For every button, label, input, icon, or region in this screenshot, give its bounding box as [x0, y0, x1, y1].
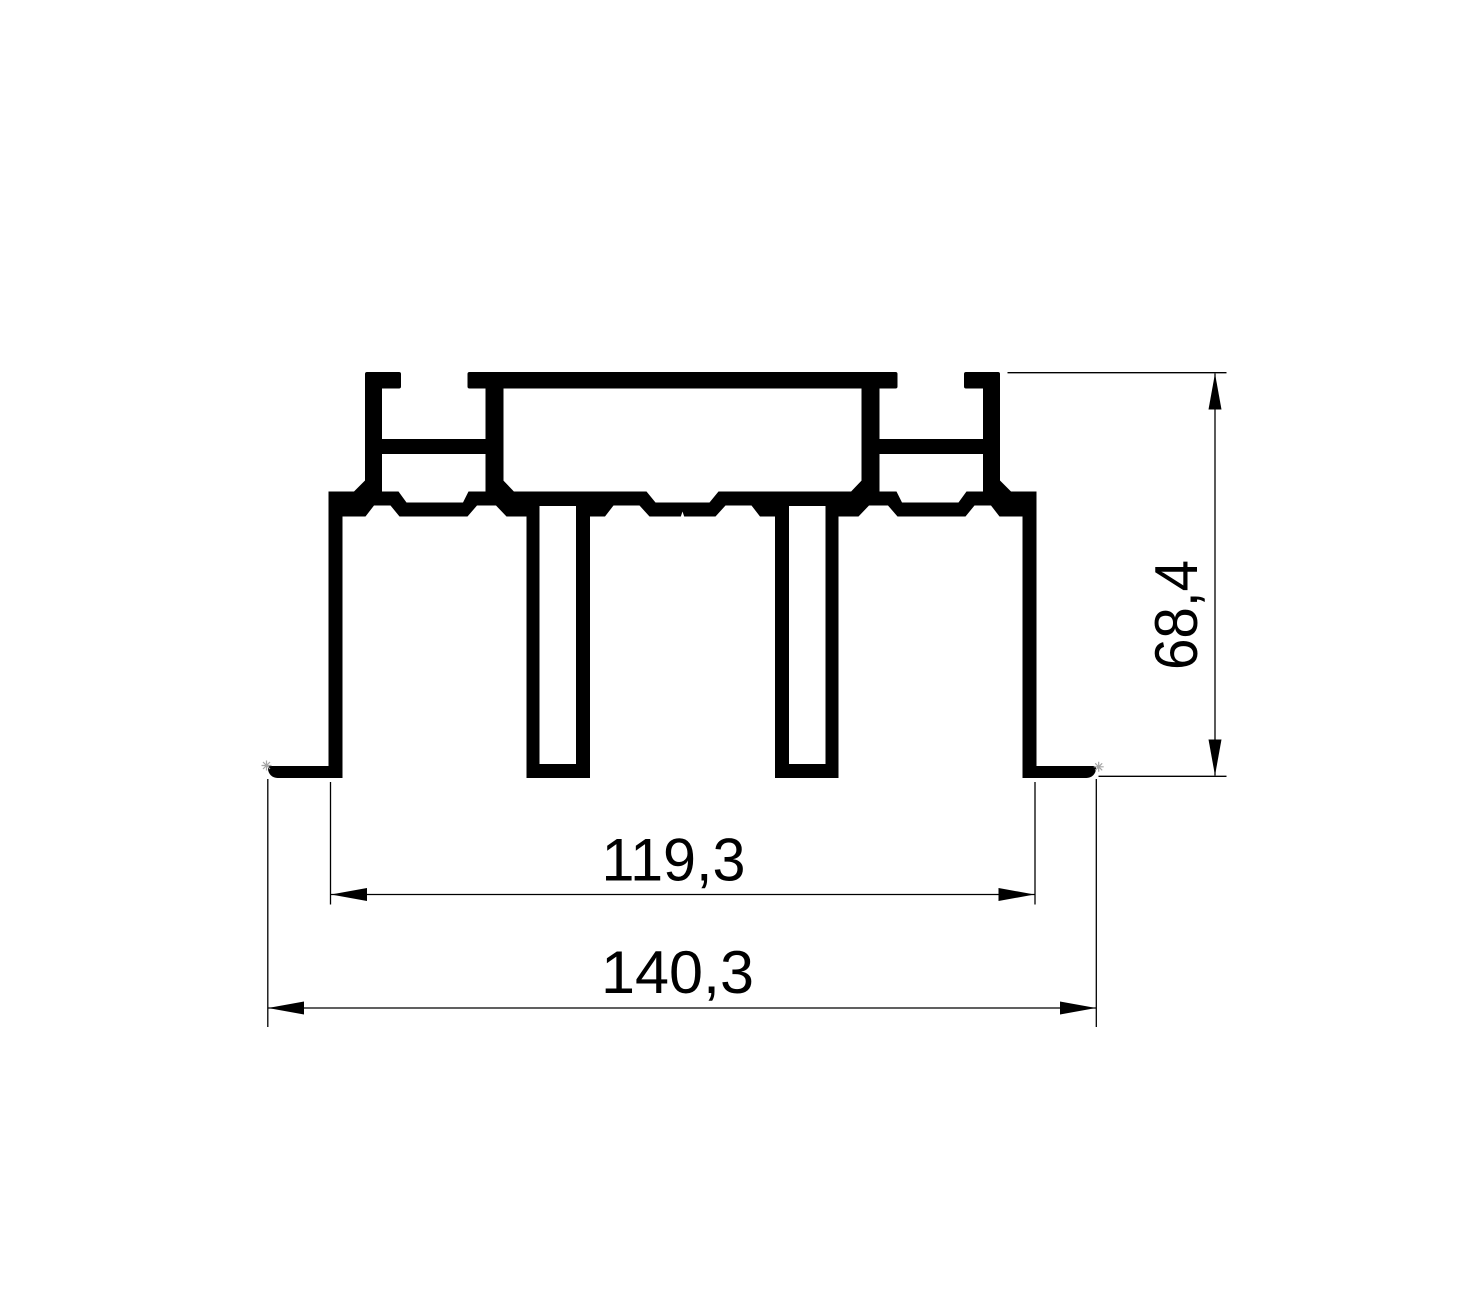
svg-text:119,3: 119,3: [602, 827, 746, 894]
svg-text:140,3: 140,3: [601, 939, 754, 1006]
svg-text:68,4: 68,4: [1143, 560, 1210, 670]
